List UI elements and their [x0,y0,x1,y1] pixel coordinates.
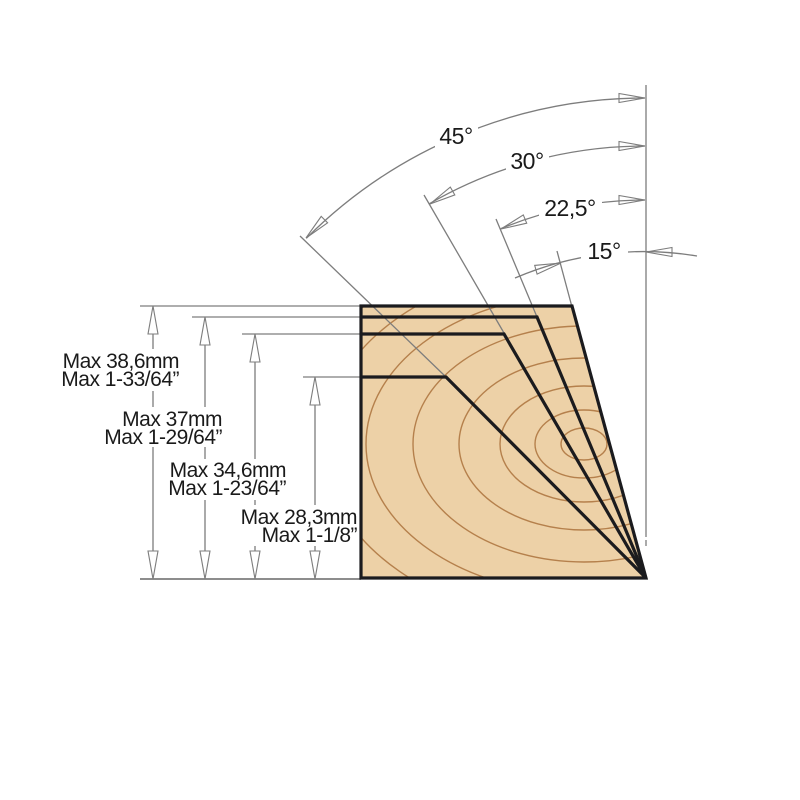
angle-label-15: 15° [587,238,620,264]
angle-label-45: 45° [439,123,472,149]
chamfer-angle-diagram: 45° 30° 22,5° 15° Max 38,6mm Max 1-33/64… [0,0,800,800]
angle-label-22_5: 22,5° [544,195,595,221]
angle-label-30: 30° [510,148,543,174]
depth-label-imperial: Max 1-29/64” [104,426,222,449]
depth-label-imperial: Max 1-33/64” [61,368,179,391]
depth-label-imperial: Max 1-23/64” [168,477,286,500]
depth-label-imperial: Max 1-1/8” [262,524,358,547]
